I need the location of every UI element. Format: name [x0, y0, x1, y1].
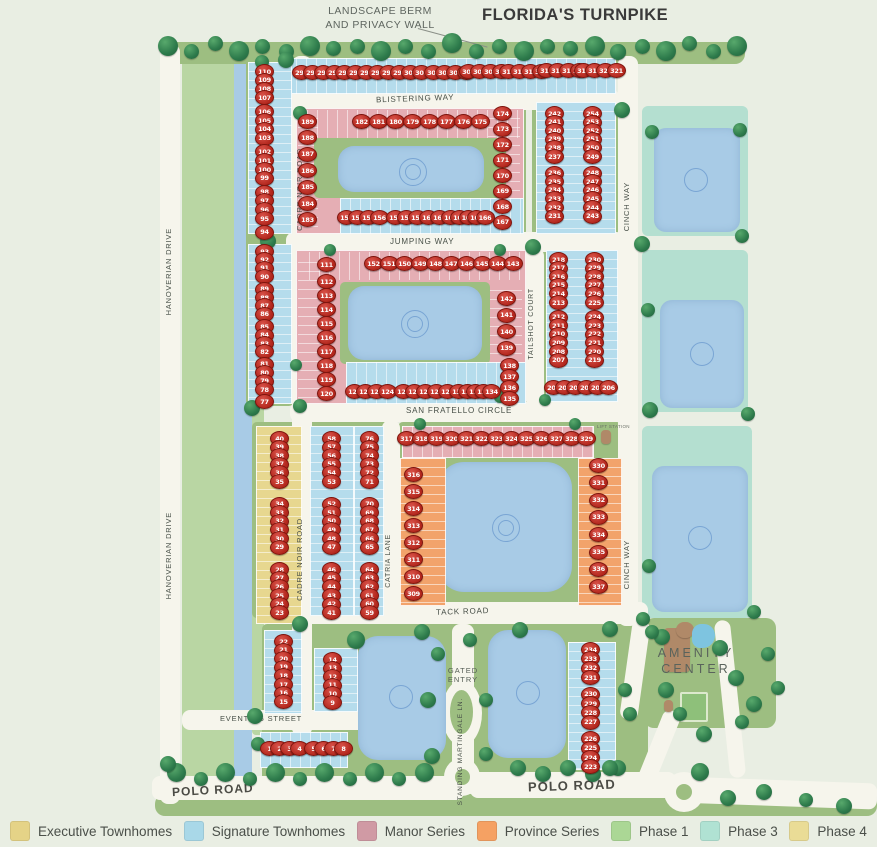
- lot-marker-321[interactable]: 321: [607, 63, 626, 78]
- tree-icon: [618, 683, 632, 697]
- tree-icon: [673, 707, 687, 721]
- legend-swatch: [357, 821, 377, 841]
- tree-icon: [645, 125, 659, 139]
- road-label-catria: CATRIA LANE: [385, 534, 392, 588]
- road-label-standing: STANDING MARTINGALE LN.: [457, 698, 464, 805]
- road-jumping: [286, 232, 624, 252]
- tree-icon: [733, 123, 747, 137]
- legend-label: Signature Townhomes: [212, 824, 345, 839]
- tree-icon: [158, 36, 178, 56]
- legend-swatch: [184, 821, 204, 841]
- lot-marker-336[interactable]: 336: [589, 562, 608, 577]
- lot-marker-168[interactable]: 168: [493, 199, 512, 214]
- road-label-fratello: SAN FRATELLO CIRCLE: [406, 406, 512, 415]
- tree-icon: [735, 715, 749, 729]
- road-label-hanoverian-north: HANOVERIAN DRIVE: [164, 228, 173, 315]
- road-label-tailshot: TAILSHOT COURT: [528, 288, 535, 360]
- tree-icon: [634, 236, 650, 252]
- tree-icon: [347, 631, 365, 649]
- lot-marker-143[interactable]: 143: [504, 256, 523, 271]
- lot-marker-172[interactable]: 172: [493, 137, 512, 152]
- tree-icon: [266, 763, 285, 782]
- legend-label: Phase 4: [817, 824, 867, 839]
- tree-icon: [641, 303, 655, 317]
- tree-icon: [712, 640, 728, 656]
- tree-icon: [741, 407, 755, 421]
- tree-icon: [194, 772, 208, 786]
- tree-icon: [315, 763, 334, 782]
- legend-item-executive-townhomes: Executive Townhomes: [10, 821, 172, 841]
- lot-marker-139[interactable]: 139: [497, 341, 516, 356]
- tree-icon: [229, 41, 249, 61]
- tree-icon: [735, 229, 749, 243]
- lot-marker-311[interactable]: 311: [404, 552, 423, 567]
- tree-icon: [585, 36, 605, 56]
- tree-icon: [560, 760, 576, 776]
- lot-marker-141[interactable]: 141: [497, 308, 516, 323]
- lot-marker-332[interactable]: 332: [589, 493, 608, 508]
- lot-marker-314[interactable]: 314: [404, 501, 423, 516]
- lot-marker-135[interactable]: 135: [500, 391, 519, 406]
- legend-swatch: [611, 821, 631, 841]
- tree-icon: [479, 747, 493, 761]
- lot-marker-243[interactable]: 243: [583, 209, 602, 224]
- tree-icon: [747, 605, 761, 619]
- legend-label: Phase 3: [728, 824, 778, 839]
- tree-icon: [540, 39, 555, 54]
- lot-marker-103[interactable]: 103: [255, 131, 274, 146]
- lot-marker-330[interactable]: 330: [589, 458, 608, 473]
- legend-label: Province Series: [505, 824, 600, 839]
- tree-icon: [514, 41, 534, 61]
- tree-icon: [635, 39, 650, 54]
- lot-marker-142[interactable]: 142: [497, 291, 516, 306]
- road-label-hanoverian-south: HANOVERIAN DRIVE: [164, 512, 173, 599]
- tree-icon: [293, 399, 307, 413]
- tree-icon: [602, 621, 618, 637]
- legend-item-signature-townhomes: Signature Townhomes: [184, 821, 345, 841]
- lot-marker-47[interactable]: 47: [322, 540, 341, 555]
- lot-marker-185[interactable]: 185: [298, 180, 317, 195]
- tree-icon: [728, 670, 744, 686]
- amenity-shed: [664, 700, 673, 712]
- tree-icon: [510, 760, 526, 776]
- lot-marker-337[interactable]: 337: [589, 579, 608, 594]
- tree-icon: [184, 44, 199, 59]
- site-plan-map: FLORIDA'S TURNPIKE LANDSCAPE BERM AND PR…: [0, 0, 877, 847]
- tree-icon: [656, 41, 676, 61]
- tree-icon: [706, 44, 721, 59]
- legend-label: Executive Townhomes: [38, 824, 172, 839]
- tree-icon: [293, 772, 307, 786]
- tree-icon: [691, 763, 709, 781]
- tree-icon: [494, 244, 506, 256]
- tree-icon: [160, 756, 176, 772]
- lot-marker-169[interactable]: 169: [493, 184, 512, 199]
- tree-icon: [727, 36, 747, 56]
- lot-marker-315[interactable]: 315: [404, 484, 423, 499]
- tree-icon: [610, 44, 626, 60]
- turnpike-title: FLORIDA'S TURNPIKE: [482, 6, 668, 25]
- lot-marker-77[interactable]: 77: [255, 394, 274, 409]
- tree-icon: [623, 707, 637, 721]
- lot-marker-29[interactable]: 29: [270, 540, 289, 555]
- tree-icon: [569, 418, 581, 430]
- lot-marker-231[interactable]: 231: [545, 209, 564, 224]
- tree-icon: [398, 39, 413, 54]
- lot-marker-312[interactable]: 312: [404, 535, 423, 550]
- tree-icon: [492, 39, 507, 54]
- tree-icon: [255, 39, 270, 54]
- tree-icon: [343, 772, 357, 786]
- tree-icon: [682, 36, 697, 51]
- west-buffer-green: [182, 44, 234, 806]
- tree-icon: [469, 44, 484, 59]
- berm-label: LANDSCAPE BERM AND PRIVACY WALL: [300, 4, 460, 32]
- lot-marker-117[interactable]: 117: [317, 344, 336, 359]
- tree-icon: [290, 359, 302, 371]
- tree-icon: [636, 612, 650, 626]
- lot-marker-94[interactable]: 94: [255, 225, 274, 240]
- lot-marker-166[interactable]: 166: [476, 210, 495, 225]
- lot-marker-335[interactable]: 335: [589, 545, 608, 560]
- tree-icon: [836, 798, 852, 814]
- lot-marker-118[interactable]: 118: [317, 358, 336, 373]
- lot-marker-113[interactable]: 113: [317, 288, 336, 303]
- tree-icon: [414, 624, 430, 640]
- tree-icon: [421, 44, 436, 59]
- tree-icon: [696, 726, 712, 742]
- lot-marker-120[interactable]: 120: [317, 386, 336, 401]
- tree-icon: [463, 633, 477, 647]
- lot-marker-95[interactable]: 95: [255, 211, 274, 226]
- tree-icon: [563, 41, 578, 56]
- legend-item-phase-1: Phase 1: [611, 821, 689, 841]
- lot-marker-111[interactable]: 111: [317, 257, 336, 272]
- tree-icon: [799, 793, 813, 807]
- lot-marker-219[interactable]: 219: [585, 353, 604, 368]
- lot-marker-65[interactable]: 65: [360, 540, 379, 555]
- lot-marker-71[interactable]: 71: [360, 474, 379, 489]
- legend-item-phase-3: Phase 3: [700, 821, 778, 841]
- legend-item-manor-series: Manor Series: [357, 821, 465, 841]
- tree-icon: [614, 102, 630, 118]
- lot-marker-313[interactable]: 313: [404, 518, 423, 533]
- tree-icon: [479, 693, 493, 707]
- tree-icon: [247, 708, 263, 724]
- lot-marker-167[interactable]: 167: [493, 215, 512, 230]
- tree-icon: [720, 790, 736, 806]
- tree-icon: [292, 616, 308, 632]
- lot-marker-170[interactable]: 170: [493, 168, 512, 183]
- lift-station-label: LIFT STATION: [597, 424, 630, 429]
- tree-icon: [278, 52, 294, 68]
- legend-item-province-series: Province Series: [477, 821, 600, 841]
- road-label-cadre-south: CADRE NOIR ROAD: [295, 518, 304, 601]
- legend-swatch: [789, 821, 809, 841]
- lot-marker-329[interactable]: 329: [577, 431, 596, 446]
- tree-icon: [645, 625, 659, 639]
- lot-marker-116[interactable]: 116: [317, 330, 336, 345]
- road-label-jumping: JUMPING WAY: [390, 237, 454, 246]
- tree-icon: [642, 559, 656, 573]
- tree-icon: [324, 244, 336, 256]
- tree-icon: [414, 418, 426, 430]
- lot-marker-187[interactable]: 187: [298, 147, 317, 162]
- lot-marker-189[interactable]: 189: [298, 114, 317, 129]
- tree-icon: [424, 748, 440, 764]
- lot-marker-8[interactable]: 8: [334, 741, 353, 756]
- tree-icon: [756, 784, 772, 800]
- tree-icon: [746, 696, 762, 712]
- lot-marker-114[interactable]: 114: [317, 302, 336, 317]
- tree-icon: [420, 692, 436, 708]
- lot-marker-333[interactable]: 333: [589, 510, 608, 525]
- road-label-cinch-north: CINCH WAY: [622, 182, 631, 231]
- legend-swatch: [10, 821, 30, 841]
- lot-marker-316[interactable]: 316: [404, 467, 423, 482]
- legend-item-phase-4: Phase 4: [789, 821, 867, 841]
- legend-label: Manor Series: [385, 824, 465, 839]
- tree-icon: [365, 763, 384, 782]
- lot-marker-249[interactable]: 249: [583, 149, 602, 164]
- lot-marker-309[interactable]: 309: [404, 586, 423, 601]
- tree-icon: [642, 402, 658, 418]
- lot-marker-184[interactable]: 184: [298, 196, 317, 211]
- tree-icon: [216, 763, 235, 782]
- lot-marker-207[interactable]: 207: [549, 353, 568, 368]
- lot-marker-9[interactable]: 9: [323, 695, 342, 710]
- lot-marker-237[interactable]: 237: [545, 149, 564, 164]
- road-label-tack: TACK ROAD: [436, 606, 490, 617]
- lot-marker-206[interactable]: 206: [599, 380, 618, 395]
- tree-icon: [535, 766, 551, 782]
- road-hanoverian: [160, 44, 180, 804]
- lot-marker-174[interactable]: 174: [493, 106, 512, 121]
- tree-icon: [539, 394, 551, 406]
- tree-icon: [602, 760, 618, 776]
- legend-swatch: [477, 821, 497, 841]
- lot-marker-310[interactable]: 310: [404, 569, 423, 584]
- lot-marker-227[interactable]: 227: [581, 715, 600, 730]
- tree-icon: [415, 763, 434, 782]
- legend: Executive TownhomesSignature TownhomesMa…: [0, 817, 877, 845]
- road-label-cinch-south: CINCH WAY: [622, 540, 631, 589]
- lot-marker-35[interactable]: 35: [270, 474, 289, 489]
- gated-entry-label: GATED ENTRY: [446, 666, 480, 684]
- lot-marker-225[interactable]: 225: [585, 295, 604, 310]
- lot-marker-119[interactable]: 119: [317, 372, 336, 387]
- tree-icon: [525, 239, 541, 255]
- legend-swatch: [700, 821, 720, 841]
- tree-icon: [761, 647, 775, 661]
- tree-icon: [326, 41, 341, 56]
- lot-marker-175[interactable]: 175: [471, 114, 490, 129]
- lot-marker-115[interactable]: 115: [317, 316, 336, 331]
- lot-marker-134[interactable]: 134: [482, 384, 501, 399]
- lot-marker-53[interactable]: 53: [322, 474, 341, 489]
- tree-icon: [512, 622, 528, 638]
- lot-marker-99[interactable]: 99: [255, 171, 274, 186]
- lift-station-box: [601, 430, 611, 444]
- lot-marker-173[interactable]: 173: [493, 122, 512, 137]
- lot-marker-112[interactable]: 112: [317, 274, 336, 289]
- tree-icon: [658, 682, 674, 698]
- legend-label: Phase 1: [639, 824, 689, 839]
- tree-icon: [771, 681, 785, 695]
- lot-marker-213[interactable]: 213: [549, 295, 568, 310]
- lot-marker-171[interactable]: 171: [493, 153, 512, 168]
- tree-icon: [431, 647, 445, 661]
- tree-icon: [350, 39, 365, 54]
- roundabout-polo-island: [676, 784, 692, 800]
- tree-icon: [208, 36, 223, 51]
